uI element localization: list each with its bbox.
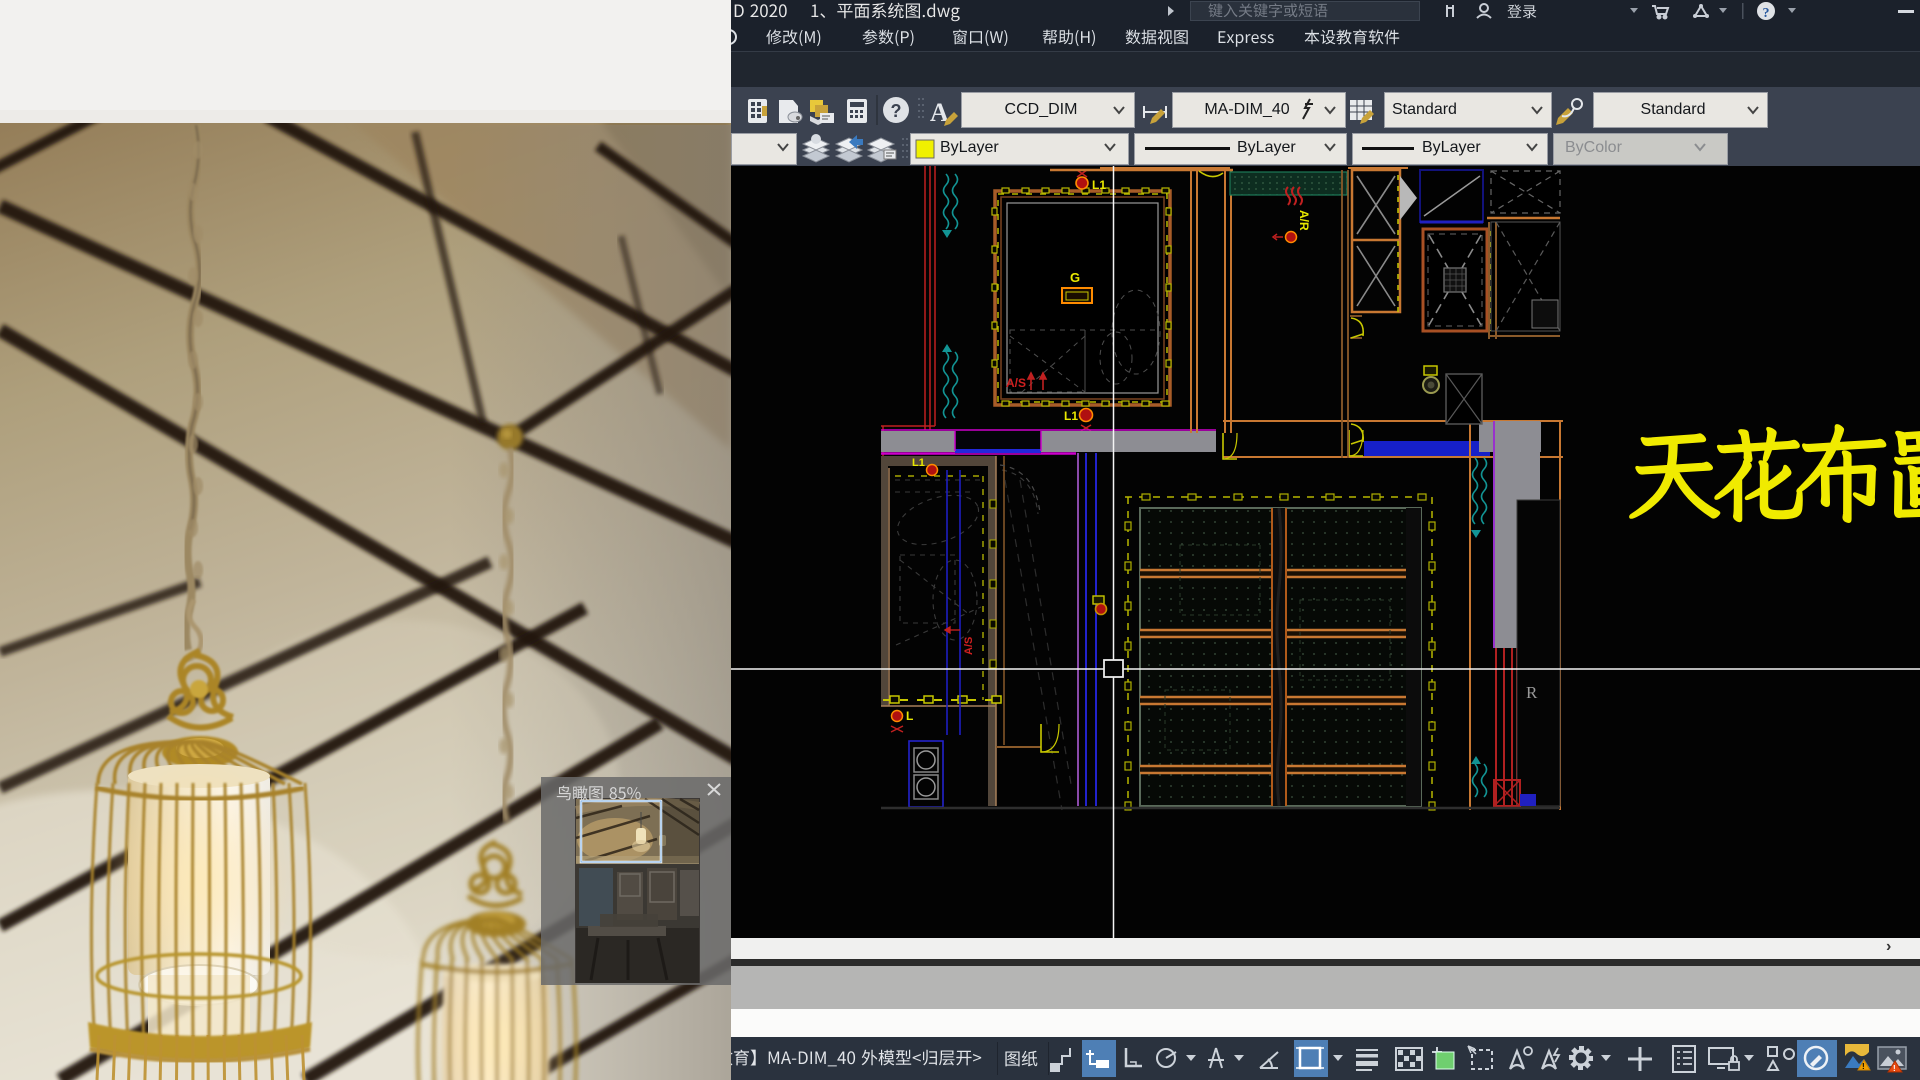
svg-text:!: ! (1893, 1064, 1896, 1073)
svg-text:!: ! (1862, 1062, 1865, 1071)
